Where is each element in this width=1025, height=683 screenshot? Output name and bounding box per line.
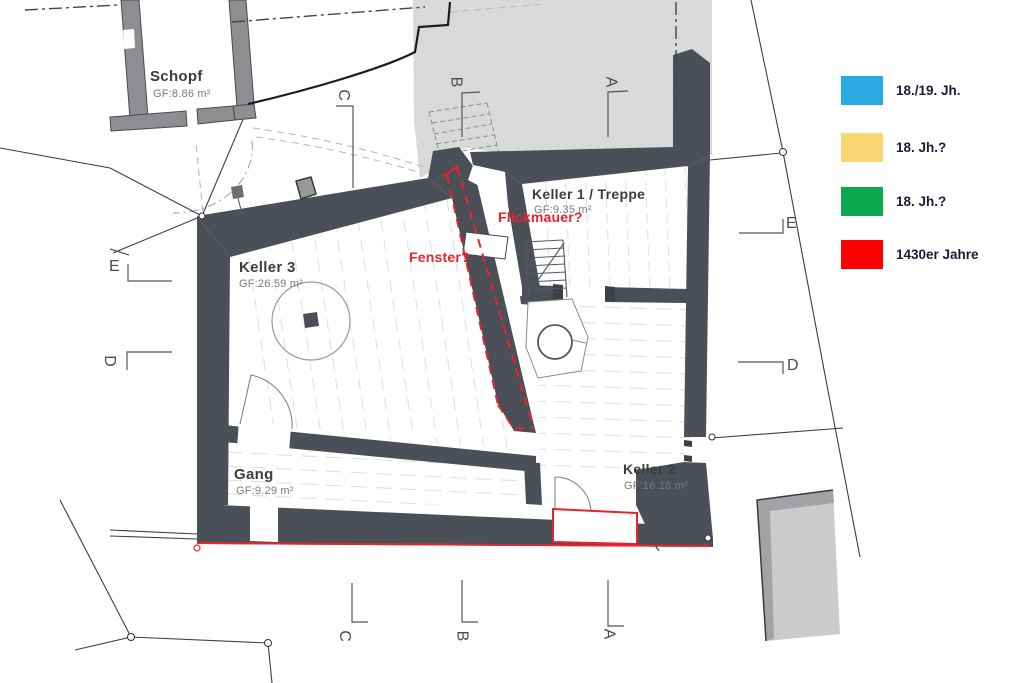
schopf-walls [110,0,256,131]
legend-swatch-blue [841,76,883,105]
legend-swatch-red [841,240,883,269]
section-marker-left-d: D [100,355,118,367]
room-area-schopf: GF:8.86 m² [153,88,211,100]
annotation-flickmauer: Flickmauer? [498,209,583,225]
legend-label-green: 18. Jh.? [896,194,946,209]
wall-northeast-band [673,49,710,167]
section-marker-bottom-b: B [452,631,470,642]
legend-label-blue: 18./19. Jh. [896,83,961,98]
courtyard-slab [757,490,840,641]
legend-swatch-green [841,187,883,216]
annotation-fenster: Fenster? [409,249,470,265]
room-label-schopf: Schopf [150,68,203,85]
room-label-keller1: Keller 1 / Treppe [532,186,645,202]
pillar [524,462,542,505]
room-area-gang: GF:9.29 m² [236,485,294,497]
room-label-gang: Gang [234,466,274,483]
section-marker-right-e: E [786,215,797,233]
section-marker-bottom-c: C [335,630,353,642]
legend-item-red: 1430er Jahre [841,240,979,269]
room-label-keller2: Keller 2 [623,461,676,477]
room-area-keller3: GF:26.59 m² [239,278,303,290]
room-area-keller2: GF:16.18 m² [624,480,688,492]
floor-plan-page: Schopf GF:8.86 m² Keller 3 GF:26.59 m² K… [0,0,1025,683]
legend-label-red: 1430er Jahre [896,247,979,262]
section-marker-top-c: C [334,89,352,101]
wall-keller1-keller2-right [605,287,688,303]
section-marker-right-d: D [787,357,799,375]
section-marker-top-a: A [601,77,619,88]
legend-item-green: 18. Jh.? [841,187,946,216]
room-label-keller3: Keller 3 [239,259,296,276]
section-marker-left-e: E [109,258,120,276]
section-marker-top-b: B [446,77,464,88]
legend-item-blue: 18./19. Jh. [841,76,961,105]
legend-item-yellow: 18. Jh.? [841,133,946,162]
legend-swatch-yellow [841,133,883,162]
section-marker-bottom-a: A [599,629,617,640]
window-niche [463,232,508,259]
legend-label-yellow: 18. Jh.? [896,140,946,155]
wall-west [197,216,230,507]
